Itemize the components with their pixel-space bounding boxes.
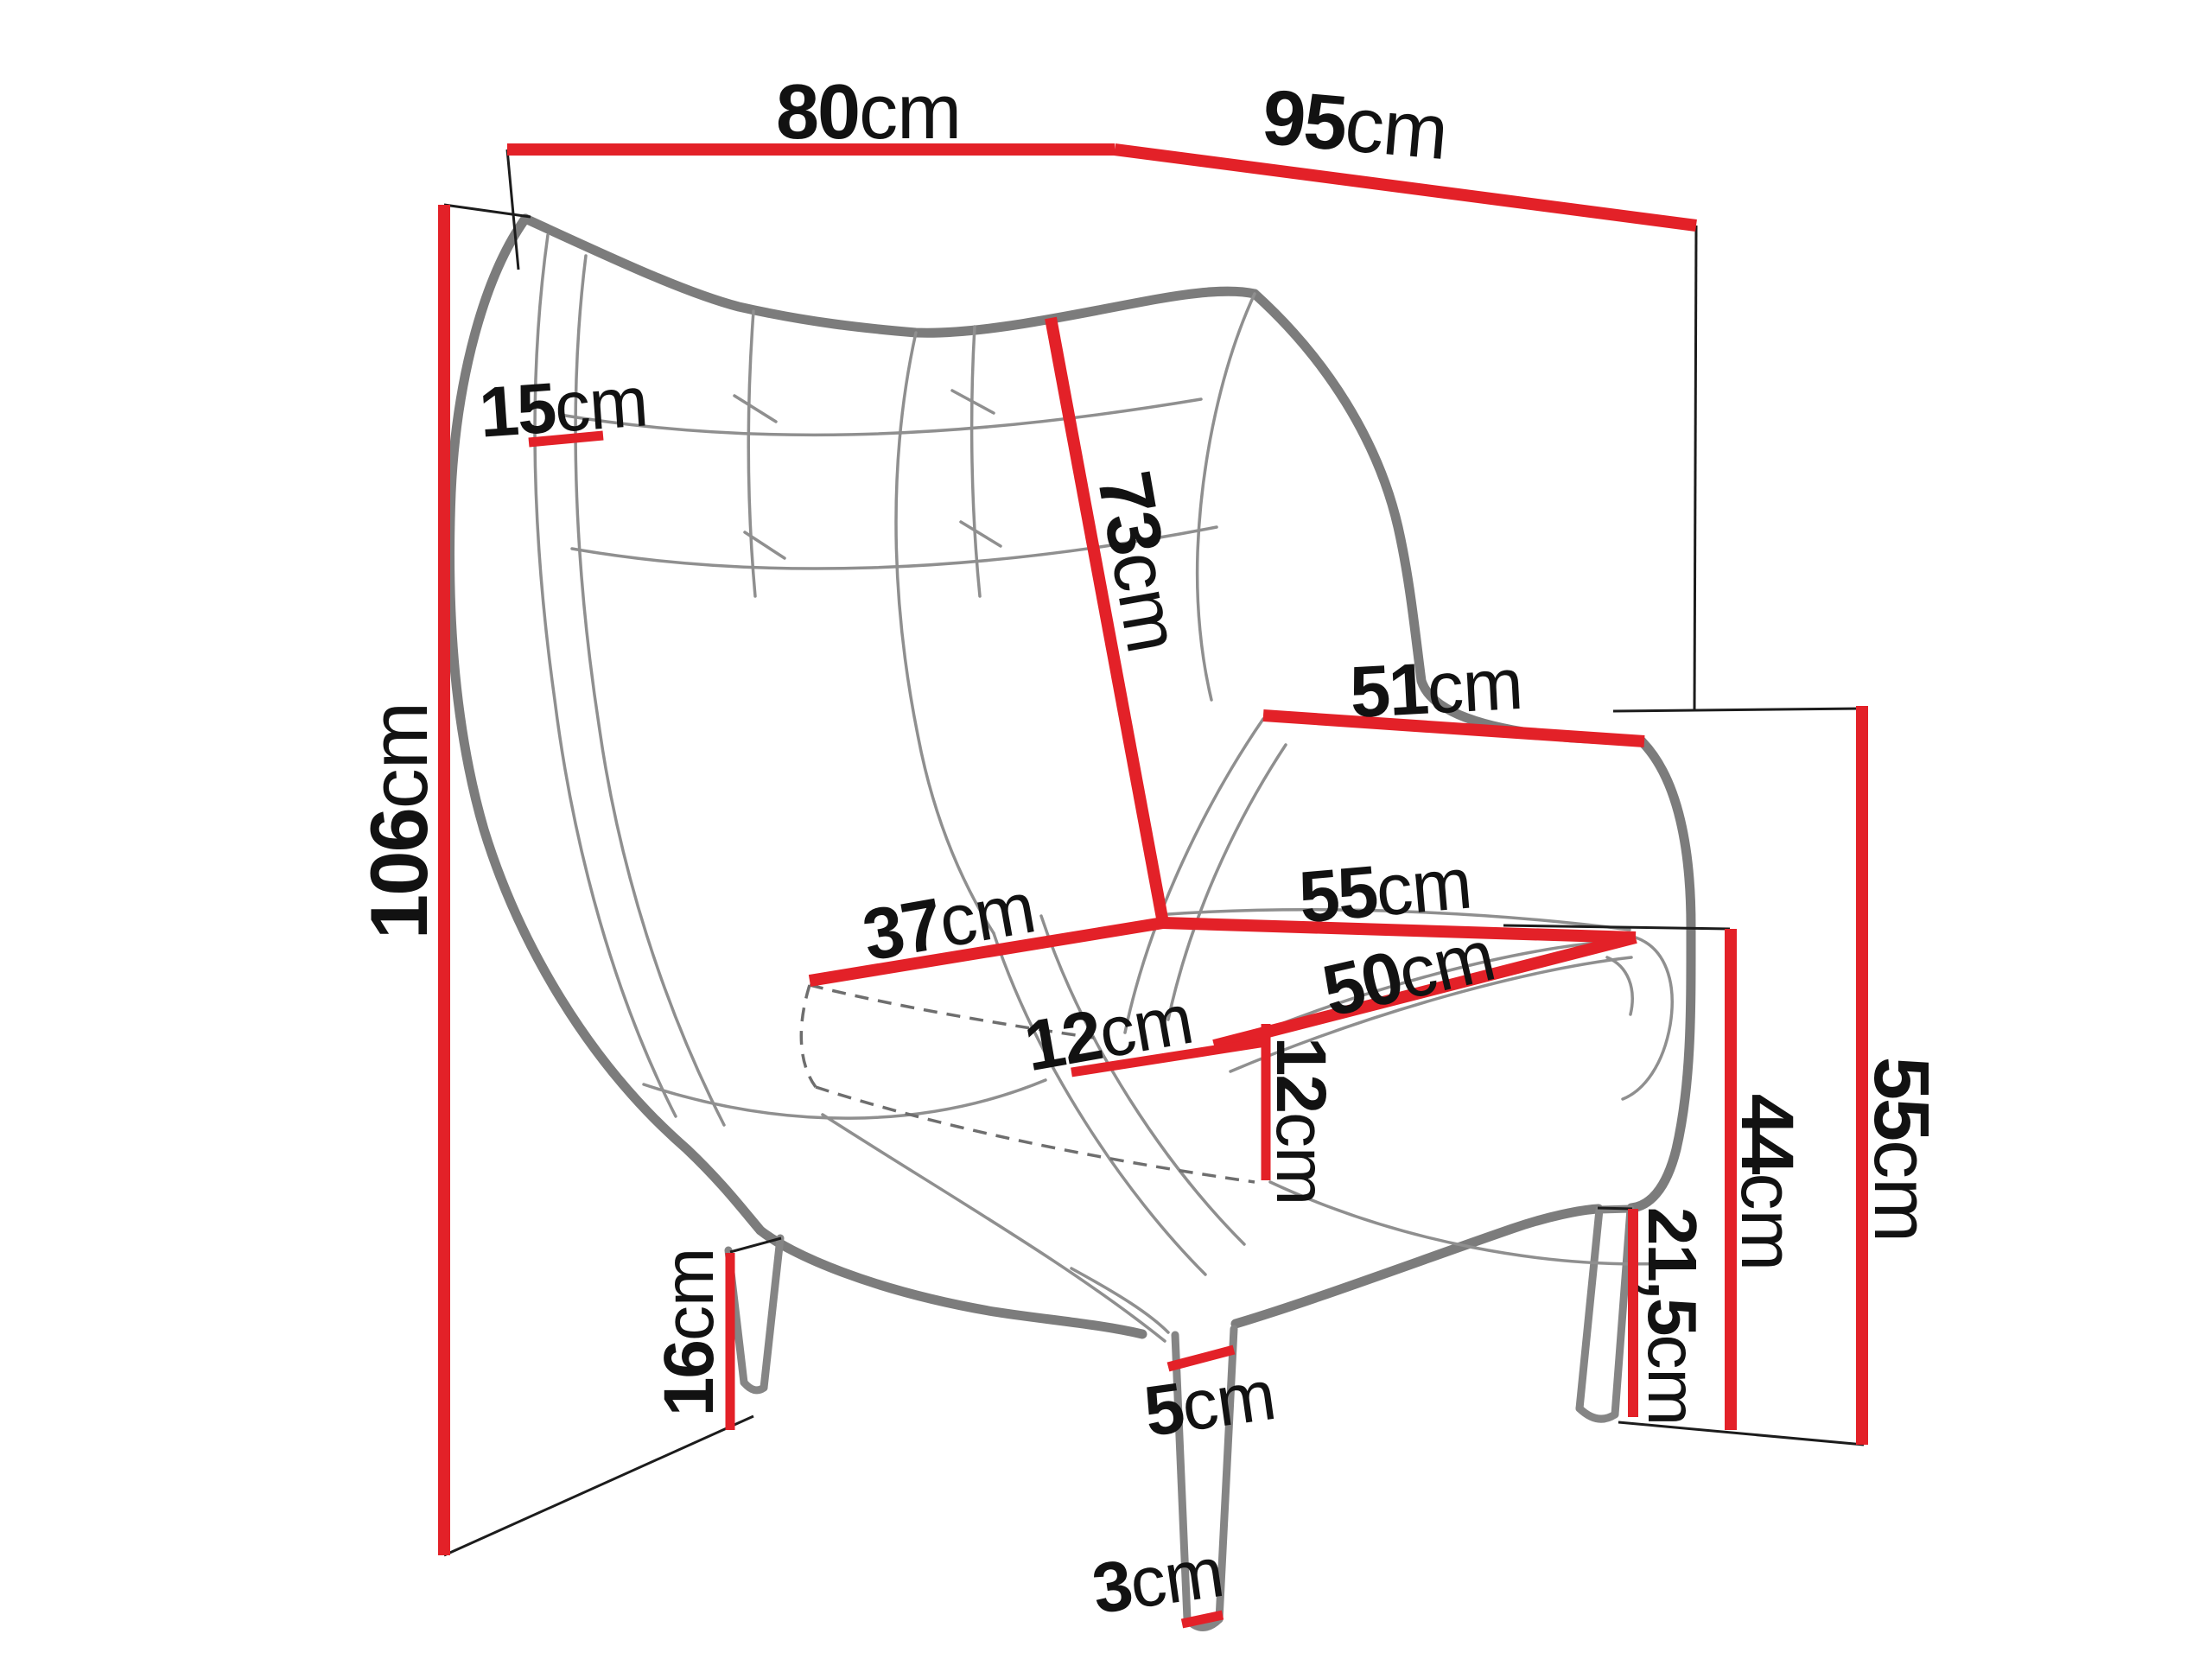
- dim-unit: cm: [1262, 1112, 1340, 1205]
- dim-unit: cm: [353, 702, 444, 809]
- dim-unit: cm: [1342, 81, 1451, 176]
- dim-value: 73: [1082, 465, 1180, 560]
- dim-label-95cm: 95cm: [1259, 79, 1450, 172]
- dimension-diagram: 80cm 95cm 106cm 15cm 73cm 51cm 37cm 55cm…: [0, 0, 2212, 1659]
- dim-value: 106: [353, 809, 444, 939]
- dim-label-15cm: 15cm: [477, 366, 650, 448]
- dim-label-12cm-side: 12cm: [1265, 1037, 1336, 1205]
- dim-value: 37: [857, 882, 947, 976]
- dim-value: 21,5: [1634, 1207, 1711, 1335]
- dim-unit: cm: [1093, 980, 1198, 1073]
- dim-label-5cm: 5cm: [1141, 1360, 1280, 1448]
- dim-label-80cm: 80cm: [776, 73, 961, 151]
- dim-label-16cm: 16cm: [654, 1249, 725, 1417]
- dim-unit: cm: [1726, 1173, 1808, 1271]
- dim-unit: cm: [1425, 643, 1524, 729]
- dim-unit: cm: [1373, 842, 1475, 931]
- dim-value: 44: [1726, 1094, 1808, 1173]
- dim-label-3cm: 3cm: [1089, 1537, 1228, 1625]
- chair-inner-seams: [535, 235, 1672, 1341]
- dim-unit: cm: [1634, 1335, 1711, 1426]
- dim-value: 80: [776, 69, 859, 156]
- dim-value: 55: [1858, 1057, 1944, 1140]
- dim-value: 16: [650, 1341, 728, 1416]
- dim-value: 95: [1259, 74, 1349, 168]
- dim-label-21-5cm: 21,5cm: [1637, 1207, 1707, 1425]
- dim-label-55cm-seat: 55cm: [1296, 846, 1474, 933]
- dim-value: 12: [1262, 1037, 1340, 1112]
- dim-unit: cm: [1858, 1140, 1944, 1242]
- dim-value: 51: [1348, 648, 1429, 734]
- dim-unit: cm: [650, 1249, 728, 1341]
- dim-label-55cm-right: 55cm: [1862, 1057, 1940, 1242]
- dim-label-106cm: 106cm: [359, 702, 440, 939]
- dim-value: 55: [1296, 850, 1380, 938]
- dim-value: 15: [477, 369, 557, 453]
- dim-label-51cm: 51cm: [1348, 647, 1524, 728]
- dim-unit: cm: [1096, 545, 1198, 658]
- dim-unit: cm: [552, 362, 650, 447]
- dim-unit: cm: [1177, 1356, 1280, 1446]
- diagram-drawing: [0, 0, 2212, 1659]
- dim-unit: cm: [859, 69, 961, 156]
- dim-label-44cm: 44cm: [1730, 1094, 1804, 1270]
- dim-value: 12: [1019, 995, 1107, 1086]
- dim-unit: cm: [933, 866, 1041, 963]
- dim-unit: cm: [1125, 1533, 1228, 1624]
